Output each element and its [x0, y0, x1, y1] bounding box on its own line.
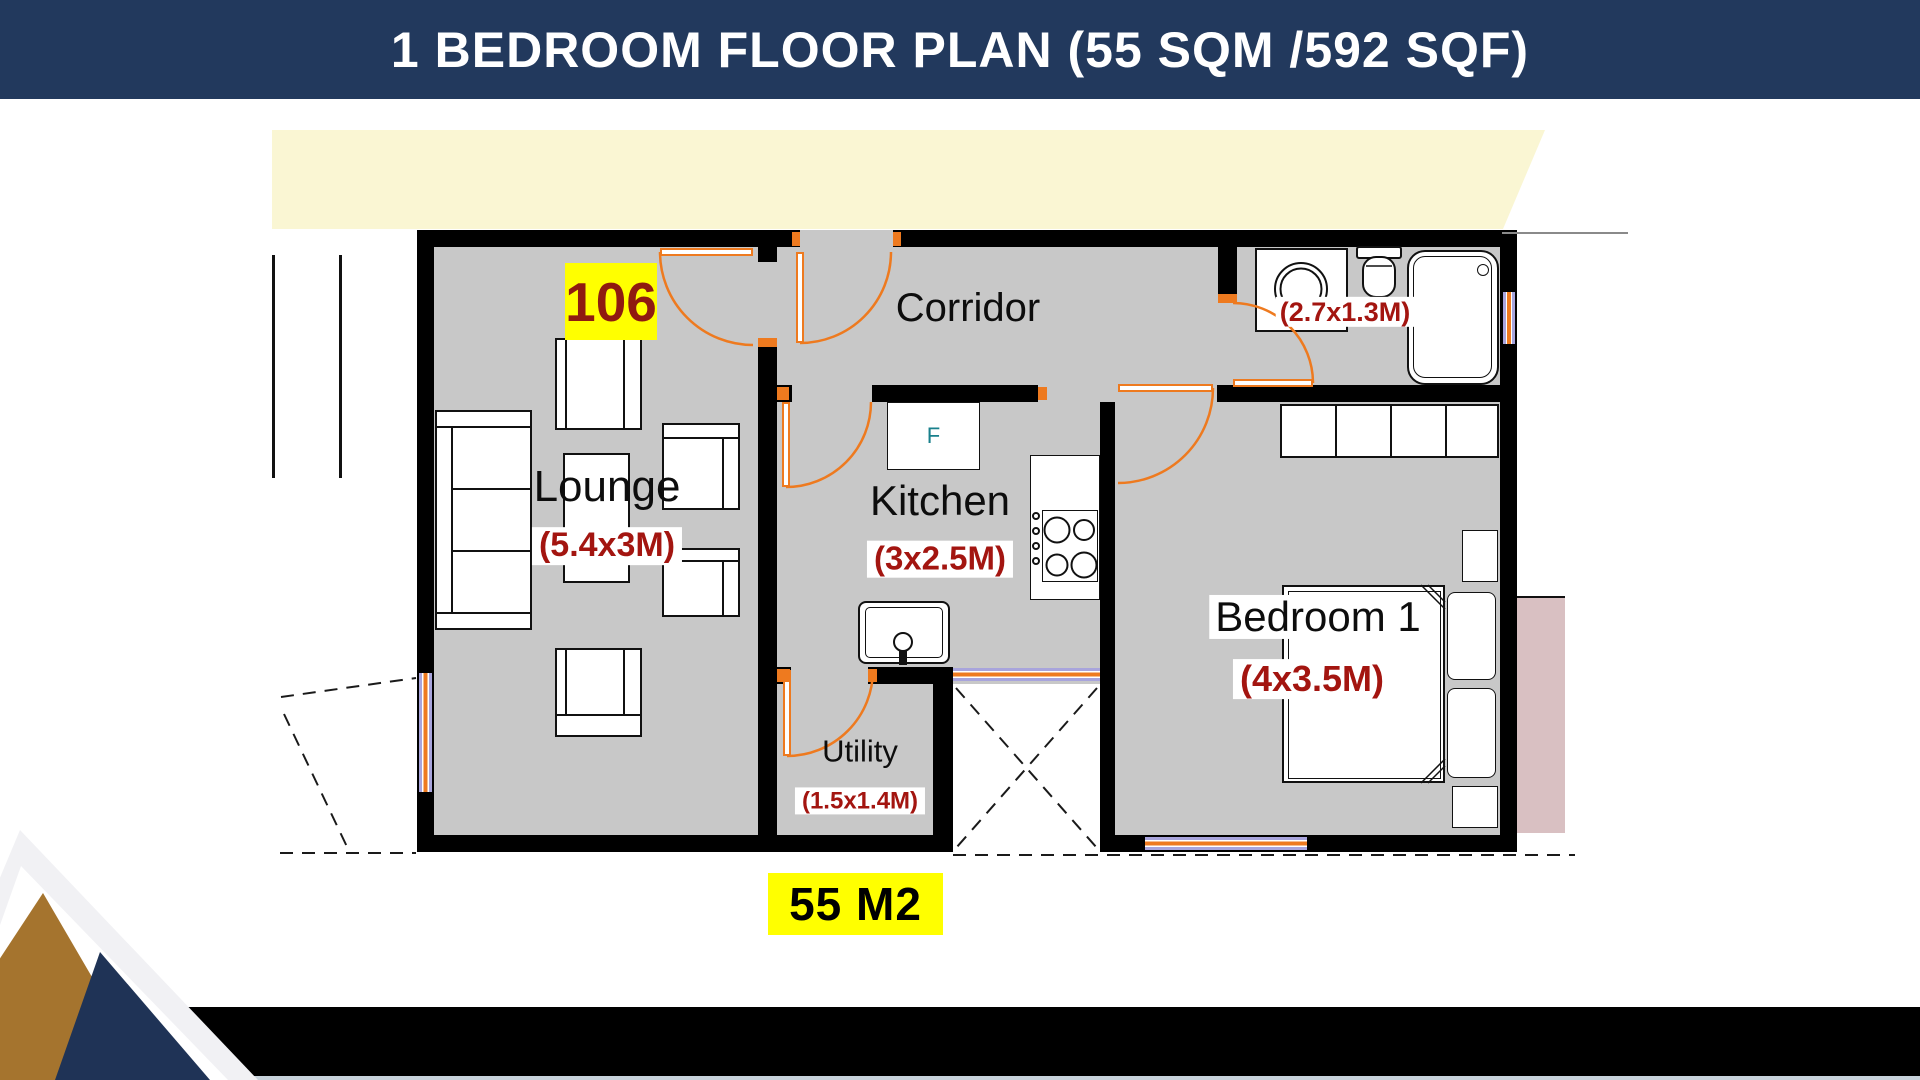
- fridge: F: [887, 402, 980, 470]
- room-dims-lounge: (5.4x3M): [532, 527, 682, 565]
- neighbor-wall-line: [339, 255, 342, 478]
- door-leaf: [1118, 384, 1213, 392]
- room-label-corridor: Corridor: [896, 287, 1040, 329]
- kitchen-sink: [858, 601, 950, 664]
- door-post: [868, 669, 877, 682]
- armchair: [555, 338, 642, 430]
- room-dims-kitchen: (3x2.5M): [867, 541, 1013, 578]
- window: [1503, 292, 1515, 344]
- door-leaf: [660, 248, 753, 256]
- room-label-utility: Utility: [822, 736, 898, 769]
- room-label-bedroom: Bedroom 1: [1209, 595, 1426, 639]
- wardrobe: [1280, 404, 1499, 458]
- wall: [417, 835, 953, 852]
- hob: [1042, 510, 1098, 582]
- floor-plan-slide: 1 BEDROOM FLOOR PLAN (55 SQM /592 SQF): [0, 0, 1920, 1080]
- room-dims-bedroom: (4x3.5M): [1233, 659, 1391, 699]
- door-leaf: [783, 670, 791, 756]
- wall: [758, 347, 777, 852]
- door-leaf: [782, 402, 790, 487]
- unit-number: 106: [565, 270, 657, 334]
- door-post: [1038, 387, 1047, 400]
- footer-bar: [0, 1007, 1920, 1076]
- page-title: 1 BEDROOM FLOOR PLAN (55 SQM /592 SQF): [391, 21, 1529, 79]
- nightstand: [1452, 786, 1498, 828]
- door-post: [1218, 294, 1237, 303]
- wall: [417, 230, 800, 247]
- wall: [1100, 402, 1115, 835]
- room-label-lounge: Lounge: [534, 464, 681, 510]
- wall: [1217, 385, 1500, 402]
- room-dims-utility: (1.5x1.4M): [795, 787, 925, 814]
- door-post: [777, 669, 790, 682]
- door-post: [792, 232, 800, 246]
- nightstand: [1462, 530, 1498, 582]
- room-label-kitchen: Kitchen: [870, 479, 1010, 523]
- window: [419, 673, 432, 792]
- wall: [1218, 230, 1237, 302]
- pillow: [1447, 592, 1496, 680]
- wall: [933, 667, 953, 852]
- sofa: [435, 410, 532, 630]
- wall: [893, 230, 1517, 247]
- fridge-label: F: [927, 423, 940, 449]
- service-shaft: [953, 684, 1100, 852]
- header-bar: 1 BEDROOM FLOOR PLAN (55 SQM /592 SQF): [0, 0, 1920, 99]
- door-leaf: [796, 252, 804, 343]
- total-area: 55 M2: [789, 877, 922, 931]
- bathtub: [1407, 250, 1499, 385]
- adjacent-balcony: [1517, 596, 1565, 833]
- armchair: [555, 648, 642, 737]
- window: [1145, 837, 1307, 850]
- door-post: [893, 232, 901, 246]
- wall: [872, 385, 1038, 402]
- room-dims-bathroom: (2.7x1.3M): [1276, 297, 1415, 327]
- total-area-badge: 55 M2: [768, 873, 943, 935]
- door-post: [758, 338, 777, 347]
- door-leaf: [1233, 379, 1313, 387]
- pillow: [1447, 688, 1496, 778]
- cream-band: [272, 130, 1545, 229]
- window: [953, 668, 1100, 681]
- footer-baseline: [0, 1076, 1920, 1080]
- wall: [758, 243, 777, 262]
- neighbor-wall-line: [272, 255, 275, 478]
- door-post: [777, 387, 789, 400]
- unit-number-badge: 106: [565, 263, 657, 340]
